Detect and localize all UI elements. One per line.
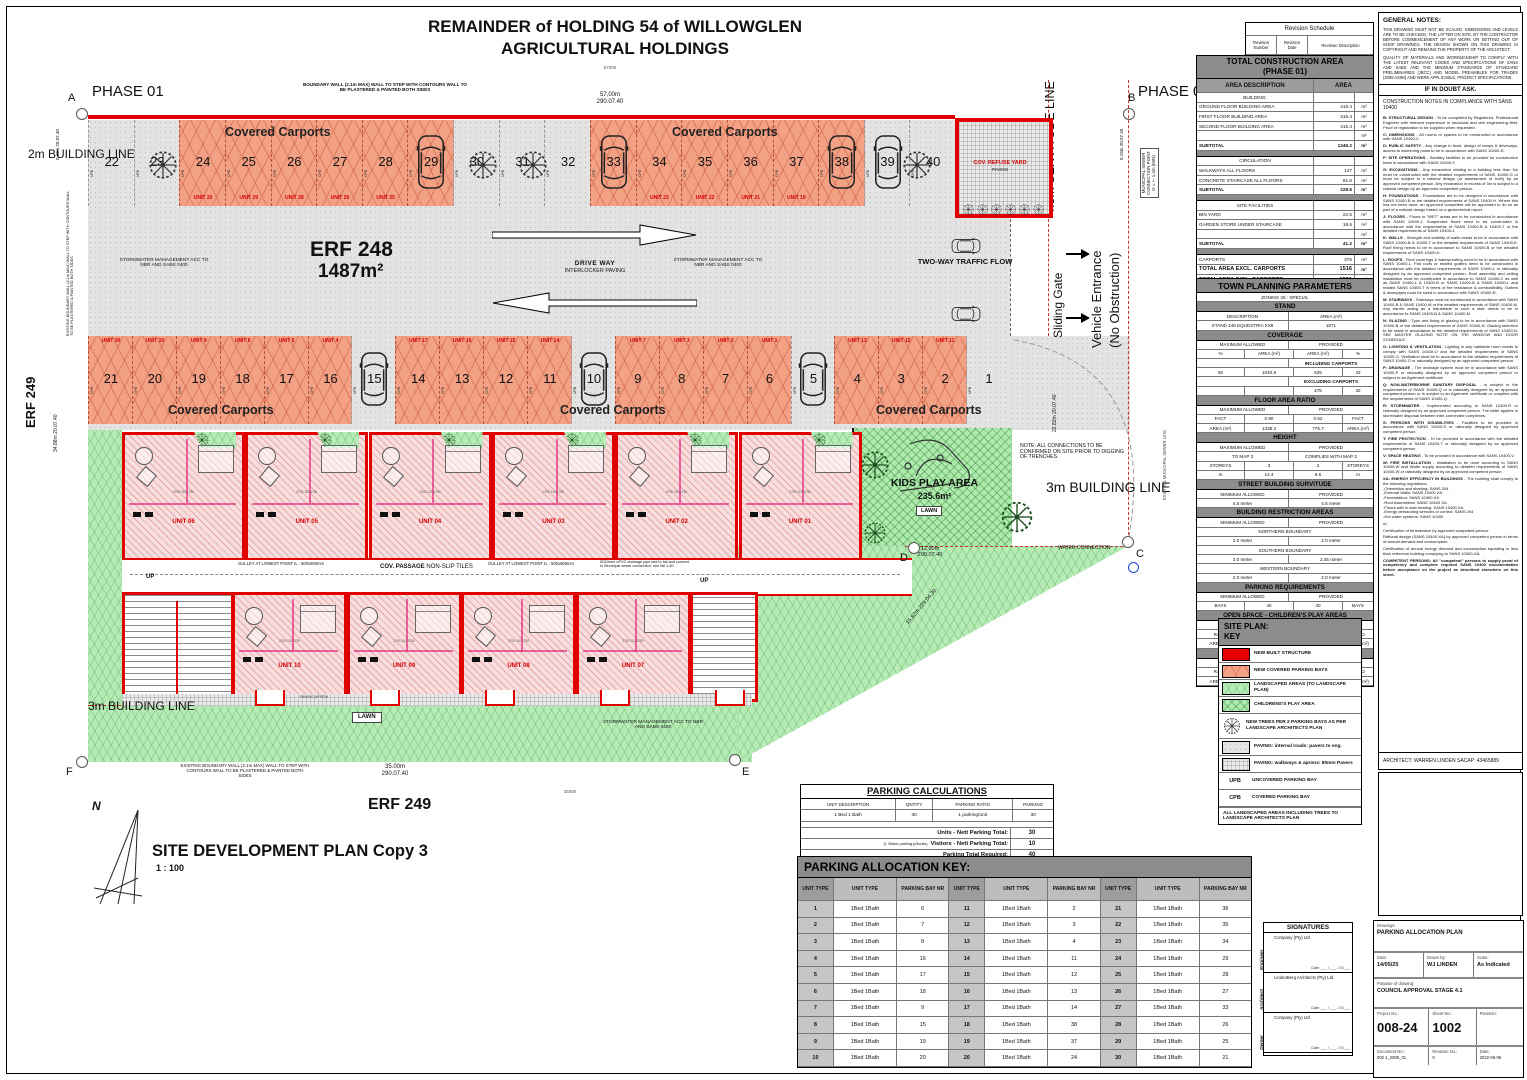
key-swatch-red [1222,648,1250,661]
bay-type-abbr: CPB [925,387,929,394]
area-desc: CARPORTS [1197,255,1314,264]
area-desc: CONCRETE STAIRCASE ALL FLOORS [1197,176,1314,185]
area-unit: m² [1355,255,1373,264]
appliance-icon [515,512,523,517]
carport-bay: 24CPBUNIT 20 [179,120,226,206]
tp-cell: 12.4 [1245,471,1294,479]
parking-calc-cell: 30 [896,810,933,821]
closing-note: Certification of fenestration by approve… [1383,529,1518,534]
bed-icon [815,445,851,473]
tp-cell: 2.0 meter [1289,537,1373,545]
appliance-icon [370,657,378,662]
allocation-unit-nr: 4 [798,951,834,967]
allocation-unit-nr: 1 [798,901,834,917]
tp-cell [1197,387,1245,395]
bay-number: 36 [728,155,774,169]
allocation-bay-nr: 12 [1048,967,1100,983]
appliance-icon [380,512,388,517]
tp-cell: PROVIDED [1289,406,1373,414]
title-block-purpose: Purpose of drawing: COUNCIL APPROVAL STA… [1374,979,1523,1009]
unit-plan: UNIT 102700 110 1750 [232,592,347,698]
tp-cell: MAXIMUM ALLOWED [1197,406,1289,414]
unit-plan: UNIT 022700 110 1750 [615,432,738,562]
tp-cell: 1338.3 [1245,424,1294,432]
car-icon [599,134,629,190]
connections-note: NOTE: ALL CONNECTIONS TO BE CONFIRMED ON… [1020,444,1125,461]
allocation-header: UNIT TYPE [798,878,834,900]
bay-number: 25 [226,155,272,169]
bay-type-abbr: CPB [319,170,323,177]
point-b-label: B [1128,92,1135,104]
traffic-arrow-east [492,224,697,246]
carport-bay: 5UPB [791,336,836,424]
bay-type-abbr: CPB [776,170,780,177]
unit-label: UNIT 08 [464,663,573,670]
staircase-plan [690,592,758,702]
carport-bay: 38CPB [818,120,865,206]
lawn-badge-kids: LAWN [916,506,942,516]
allocation-unit-type: 1Bed 1Bath [834,1001,897,1017]
allocation-bay-nr: 36 [1200,901,1251,917]
bay-type-abbr: UPB [137,170,141,177]
parking-calc-header: QNTITY [896,799,933,809]
unit-plan: UNIT 032700 110 1750 [492,432,615,562]
allocation-unit-type: 1Bed 1Bath [985,901,1048,917]
title-block-doc: Document No.:002 1_2008_01 [1374,1047,1429,1065]
allocation-bay-nr: 15 [897,1017,949,1033]
signature-date: Date ___ / ___ / 20___ [1311,1046,1350,1050]
allocation-unit-type: 1Bed 1Bath [1137,918,1200,934]
area-value: 415.4 [1314,122,1355,131]
bay-number: 6 [748,372,792,386]
allocation-unit-nr: 30 [1101,1050,1137,1066]
tp-cell: PROVIDED [1289,593,1373,601]
appliance-icon [358,657,366,662]
car-icon [798,351,828,407]
area-unit: m² [1355,220,1373,229]
bay-type-abbr: CPB [182,170,186,177]
allocation-bay-nr: 26 [1200,1017,1251,1033]
area-desc: WALKWAYS ALL FLOORS [1197,166,1314,175]
appliance-icon [392,512,400,517]
north-arrow-icon [88,808,148,908]
tp-cell: FACT [1343,415,1373,423]
construction-note: Q: NON-WATERBORNE SANITARY DISPOSAL - is… [1383,383,1518,402]
allocation-bay-nr: 25 [1200,1034,1251,1050]
allocation-unit-type: 1Bed 1Bath [834,984,897,1000]
unit-label: UNIT 01 [742,519,859,526]
tp-section-bar: STAND [1197,302,1373,312]
tp-cell: AREA (m²) [1294,350,1343,358]
bay-unit-label: UNIT 3 [660,339,704,345]
erf248-area: 1487m² [318,262,384,283]
tp-cell: 625 [1294,368,1343,376]
car-icon [416,134,446,190]
tp-section-bar: PARKING REQUIREMENTS [1197,583,1373,593]
allocation-unit-nr: 19 [949,1034,985,1050]
tp-cell: % [1197,350,1245,358]
tree-icon [1222,716,1242,736]
allocation-unit-nr: 29 [1101,1034,1137,1050]
tp-cell [1197,377,1289,385]
xa-item: -Hot water systems: SANS 10400 [1383,515,1518,520]
stormwater-note-lawn: STORMWATER MANAGEMENT ACC TO NBR AND SAB… [598,720,708,731]
title-block-scale: Scale:As Indicated [1474,953,1523,977]
allocation-unit-nr: 24 [1101,951,1137,967]
allocation-header: UNIT TYPE [1137,878,1200,900]
construction-note: N: GLAZING - Type and fixing of glazing … [1383,319,1518,343]
bay-number: 12 [484,372,528,386]
bay-unit-label: UNIT 28 [272,196,318,202]
bay-number: 2 [923,372,967,386]
area-unit: m² [1355,141,1373,150]
existing-boundary-wall-note-bottom: EXISTING BOUNDARY WALL (2.1m MAX) WALL T… [180,764,310,779]
bay-number: 26 [272,155,318,169]
col-area: AREA [1314,79,1373,92]
car-icon [873,134,903,190]
parking-calc-header: UNIT DESCRIPTION [801,799,896,809]
allocation-unit-nr: 10 [798,1050,834,1066]
covered-carports-label: Covered Carports [672,126,778,140]
unit-label: UNIT 03 [495,519,612,526]
col-area-description: AREA DESCRIPTION [1197,79,1314,92]
construction-note: T: FIRE PROTECTION - To be provided in a… [1383,437,1518,451]
allocation-unit-nr: 27 [1101,1001,1137,1017]
area-desc: GROUND FLOOR BUILDING AREA [1197,103,1314,112]
allocation-unit-type: 1Bed 1Bath [834,901,897,917]
allocation-unit-nr: 6 [798,984,834,1000]
bay-type-abbr: CPB [311,387,315,394]
table-icon [589,607,607,625]
key-label: CHILDRENS'S PLAY AREA [1254,702,1317,708]
table-icon [382,447,400,465]
allocation-unit-nr: 15 [949,967,985,983]
bay-type-abbr: CPB [530,387,534,394]
area-desc [1197,131,1314,140]
bay-number: 4 [835,372,879,386]
architect-row: ARCHITECT: WARREN LINDEN SACAP: 43465889 [1378,752,1523,770]
construction-note: C: DIMENSIONS - All rooms or spaces to b… [1383,133,1518,143]
tp-cell: 50 [1197,368,1245,376]
area-value [1314,131,1355,140]
bay-type-abbr: CPB [179,387,183,394]
allocation-unit-type: 1Bed 1Bath [985,967,1048,983]
compliance-note: CONSTRUCTION NOTES IN COMPLIANCE WITH SA… [1379,96,1522,114]
tp-cell: 0.90 [1245,415,1294,423]
bay-number: 8 [660,372,704,386]
area-unit: m² [1355,122,1373,131]
tp-section-bar: HEIGHT [1197,433,1373,443]
allocation-unit-nr: 14 [949,951,985,967]
bay-unit-label: UNIT 9 [177,339,221,345]
bay-unit-label: UNIT 17 [396,339,440,345]
bay-type-abbr: CPB [639,170,643,177]
area-desc: SUBTOTAL [1197,185,1314,194]
allocation-header: UNIT TYPE [834,878,897,900]
dim-right-b: 0.18m 20.07.40 [1120,129,1125,160]
table-icon [628,447,646,465]
unit-wall [499,503,606,505]
bay-number: 21 [89,372,133,386]
unit-dims: 2700 110 1750 [235,640,344,644]
bay-unit-label: UNIT 23 [637,196,683,202]
unit-wall [583,650,682,652]
allocation-unit-type: 1Bed 1Bath [1137,984,1200,1000]
carport-bay: 16CPBUNIT 4 [308,336,353,424]
chair-icon [506,466,527,487]
carport-bay: 12CPBUNIT 15 [483,336,528,424]
allocation-bay-nr: 27 [1200,984,1251,1000]
key-label: PAVING: internal roads: pavers to eng. [1254,744,1344,750]
tp-cell: 40 [1245,602,1294,610]
carport-bay: 33CPB [590,120,637,206]
construction-note: P: DRAINAGE - The drainage system must b… [1383,366,1518,380]
unit-plan: UNIT 092700 110 1750 [347,592,462,698]
allocation-unit-type: 1Bed 1Bath [1137,1034,1200,1050]
tp-cell: 9.5 [1294,471,1343,479]
allocation-header: PARKING BAY NR [1200,878,1251,900]
point-f-label: F [66,766,73,778]
carport-bay: 7CPBUNIT 2 [703,336,748,424]
bay-number: 14 [396,372,440,386]
tp-cell: STOREYS [1197,462,1245,470]
signature-date: Date ___ / ___ / 20___ [1311,1006,1350,1010]
bay-unit-label: UNIT 7 [616,339,660,345]
carport-bay: 14CPBUNIT 17 [395,336,440,424]
allocation-unit-type: 1Bed 1Bath [834,1034,897,1050]
phase-label-left: PHASE 01 [92,84,164,101]
bay-unit-label: UNIT 20 [180,196,226,202]
allocation-unit-type: 1Bed 1Bath [985,918,1048,934]
revision-col-header: Revision Number [1246,36,1277,54]
dim-left-mid: 34.88m 20.07.40 [54,414,60,452]
covered-carports-label: Covered Carports [876,404,982,418]
allocation-unit-nr: 22 [1101,918,1137,934]
tree-icon [862,520,888,546]
table-icon [360,607,378,625]
municipal-sewer-note: MUNICIPAL SEWER CONNECTION POINT D = +- … [1140,148,1159,198]
unit-dims: 2700 110 1750 [372,491,489,495]
parking-calc-header: PARKING [1013,799,1053,809]
revision-schedule-title: Revision Schedule [1246,23,1373,36]
bay-type-abbr: UPB [969,387,973,394]
allocation-bay-nr: 38 [1048,1017,1100,1033]
signature-date: Date ___ / ___ / 20___ [1311,966,1350,970]
chair-icon [259,466,280,487]
key-swatch-salmon [1222,665,1250,678]
construction-note: B: STRUCTURAL DESIGN - To be completed b… [1383,116,1518,130]
area-desc: FIRST FLOOR BUILDING AREA [1197,112,1314,121]
allocation-unit-nr: 9 [798,1034,834,1050]
water-connection-marker [1128,562,1139,573]
bay-type-abbr: CPB [821,170,825,177]
area-value: 147 [1314,166,1355,175]
bay-number: 17 [265,372,309,386]
area-unit [1355,201,1373,210]
allocation-unit-type: 1Bed 1Bath [985,1034,1048,1050]
area-unit: m² [1355,265,1373,275]
construction-note: F: SITE OPERATIONS - Sanitary facilities… [1383,156,1518,166]
bay-number: 9 [616,372,660,386]
bed-icon [568,445,604,473]
bay-number: 34 [637,155,683,169]
key-swatch-greencross [1222,699,1250,712]
allocation-unit-type: 1Bed 1Bath [834,1050,897,1066]
unit-wall [129,503,236,505]
title-block: Drawings: PARKING ALLOCATION PLAN Date:1… [1373,920,1524,1078]
area-unit: m² [1355,176,1373,185]
closing-note: Certification of annual energy demand an… [1383,547,1518,557]
tp-cell: AREA (m²) [1245,350,1294,358]
allocation-bay-nr: 35 [1200,918,1251,934]
unit-plan: UNIT 062700 110 1750 [122,432,245,562]
architect-credit: ARCHITECT: WARREN LINDEN SACAP: 43465889 [1379,758,1499,764]
passage-label: COV. PASSAGE NON-SLIP TILES [380,564,470,571]
area-desc: GARDEN STORE UNDER STAIRCASE [1197,220,1314,229]
up-label-1: UP [146,574,154,581]
bay-type-abbr: CPB [750,387,754,394]
area-value: 1246.2 [1314,141,1355,150]
tree-icon [858,448,892,482]
bed-line [322,451,356,452]
bay-unit-label: UNIT 10 [133,339,177,345]
car-icon [827,134,857,190]
allocation-unit-type: 1Bed 1Bath [985,1001,1048,1017]
tp-cell: 475 [1294,387,1343,395]
allocation-unit-nr: 8 [798,1017,834,1033]
point-d-marker [908,542,920,554]
tp-cell: 2 [1294,462,1343,470]
tp-cell: FACT [1197,415,1245,423]
tp-cell: STAND 248 EQUESTRIA XX8 [1197,321,1289,329]
plan-title: SITE DEVELOPMENT PLAN Copy 3 [152,842,428,860]
bay-type-abbr: CPB [398,387,402,394]
allocation-header: UNIT TYPE [949,878,985,900]
tp-cell: MINIMUM ALLOWED [1197,518,1289,526]
bay-unit-label: UNIT 12 [879,339,923,345]
tp-cell: AREA (m²) [1289,312,1373,320]
bay-unit-label: UNIT 4 [309,339,353,345]
allocation-bay-nr: 21 [1200,1050,1251,1066]
up-label-2: UP [700,578,708,585]
town-planning-title: TOWN PLANNING PARAMETERS [1197,279,1373,293]
bay-unit-label: UNIT 21 [728,196,774,202]
revision-col-header: Revision Description [1308,36,1373,54]
bay-number: 27 [317,155,363,169]
covered-carports-label: Covered Carports [225,126,331,140]
bay-unit-label: UNIT 25 [363,196,409,202]
area-value: 81.6 [1314,176,1355,185]
key-swatch-paving [1222,741,1250,754]
bay-type-abbr: UPB [867,170,871,177]
bay-number: 13 [440,372,484,386]
tp-cell: 2.35 meter [1289,555,1373,563]
unit-label: UNIT 05 [248,519,365,526]
bay-unit-label: UNIT 22 [682,196,728,202]
refuse-yard: COV. REFUSE YARD PAVING [955,118,1053,218]
tp-cell: NORTHERN BOUNDARY [1197,528,1373,536]
allocation-unit-type: 1Bed 1Bath [1137,1017,1200,1033]
title-block-sheet: Sheet No.:1002 [1429,1009,1476,1045]
area-desc: TOTAL AREA EXCL. CARPORTS [1197,265,1314,275]
allocation-bay-nr: 17 [897,967,949,983]
construction-note: L: ROOFS - Roof coverings & waterproofin… [1383,258,1518,296]
area-desc: SITE FACILITIES [1197,201,1314,210]
bed-line [692,451,726,452]
dim-left-a: 0.11m 20.07.40 [56,129,61,160]
tp-cell: MINIMUM ALLOWED [1197,490,1289,498]
point-b-marker [1123,108,1135,120]
unit-plan: UNIT 072700 110 1750 [576,592,691,698]
allocation-bay-nr: 20 [897,1050,949,1066]
bay-unit-label: UNIT 5 [265,339,309,345]
bay-type-abbr: CPB [730,170,734,177]
traffic-arrow-west [492,292,697,314]
area-value: 375 [1314,255,1355,264]
passage-centerline [130,574,900,575]
allocation-unit-nr: 20 [949,1050,985,1066]
if-in-doubt: IF IN DOUBT ASK. [1379,84,1522,96]
point-f-marker [76,756,88,768]
allocation-unit-type: 1Bed 1Bath [834,1017,897,1033]
bed-icon [321,445,357,473]
appliance-icon [256,512,264,517]
construction-note: O: LIGHTING & VENTILATION - Lighting in … [1383,345,1518,364]
closing-note: COMPETENT PERSONS: All "competent" perso… [1383,559,1518,578]
refuse-tree-icon [1032,203,1045,216]
staircase-plan [122,592,234,706]
key-label: NEW BUILT STRUCTURE [1254,651,1313,657]
driveway-label-1: DRIVE WAY [520,260,670,267]
existing-boundary-wall-note-left: EXISTING BOUNDARY WALL (2.1m MAX) WALL T… [66,186,74,336]
gulley-note-2: GULLEY AT LOWEST POINT IL : 600x600mm [488,562,574,567]
bed-line [446,451,480,452]
unit-dims: 2700 110 1750 [125,491,242,495]
parking-allocation-title: PARKING ALLOCATION KEY: [798,857,1251,878]
bay-type-abbr: CPB [881,387,885,394]
tp-cell: AREA (m²) [1343,424,1373,432]
unit-dims: 2700 110 1750 [579,640,688,644]
tp-cell: BAYS [1343,602,1373,610]
point-a-marker [76,108,88,120]
allocation-bay-nr: 11 [1048,951,1100,967]
bay-number: 20 [133,372,177,386]
area-value [1314,93,1355,102]
dim-top: 57,00m290.07.40 [560,92,660,105]
point-d-label: D [900,552,908,564]
erf249-bottom-label: ERF 249 [368,796,431,814]
drain-note: Ø110mm uPVC drainage pipe laid to fall a… [600,560,692,568]
area-value: 415.4 [1314,112,1355,121]
area-desc: SUBTOTAL [1197,239,1314,248]
unit-wall [746,503,853,505]
allocation-unit-type: 1Bed 1Bath [1137,934,1200,950]
tp-cell: STOREYS [1343,462,1373,470]
title-block-revision: Revision: [1477,1009,1523,1045]
allocation-unit-type: 1Bed 1Bath [834,934,897,950]
appliance-icon [587,657,595,662]
area-unit: m² [1355,239,1373,248]
construction-note: J: FLOORS - Floors in "WET" areas are to… [1383,215,1518,234]
appliance-icon [638,512,646,517]
appliance-icon [255,657,263,662]
key-label: COVERED PARKING BAY [1252,795,1312,801]
carport-bay: 37CPBUNIT 19 [773,120,820,206]
parking-calc-cell: 1 parking/unit [933,810,1013,821]
area-value [1314,157,1355,166]
unit-bay-window [255,690,285,706]
tp-cell: ZONING 28 : SPECIAL [1197,293,1373,301]
